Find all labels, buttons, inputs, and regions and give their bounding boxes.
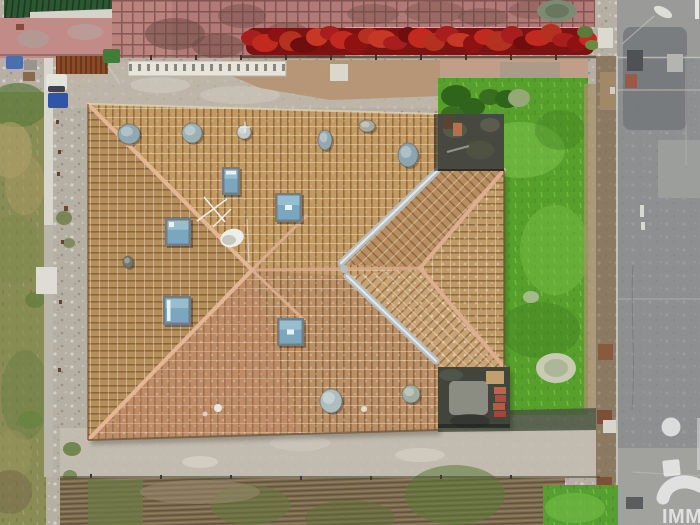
red-brick bbox=[493, 403, 505, 410]
red-brick bbox=[494, 411, 506, 417]
roof-vent-part bbox=[361, 122, 370, 128]
grey-crate bbox=[24, 60, 37, 70]
grass-tuft bbox=[25, 292, 45, 308]
main-ridge bbox=[252, 268, 420, 270]
fence-post bbox=[370, 476, 372, 480]
house bbox=[88, 104, 513, 445]
vent-cap bbox=[361, 406, 367, 412]
fence-post bbox=[150, 55, 152, 60]
dry-grass-patch bbox=[5, 155, 45, 215]
blue-tarp bbox=[6, 56, 23, 69]
white-post bbox=[598, 28, 613, 48]
fence-post bbox=[61, 240, 64, 244]
moss-stain bbox=[405, 1, 465, 23]
watermark-text: IMM bbox=[662, 506, 700, 525]
fence-post bbox=[330, 55, 332, 60]
white-sign bbox=[330, 64, 348, 81]
gravel-mottle bbox=[395, 448, 445, 462]
fence-post bbox=[440, 475, 442, 479]
red-brick bbox=[494, 387, 506, 394]
skylight-part bbox=[278, 196, 300, 206]
terrace-stain bbox=[17, 30, 49, 48]
white-shed-roof bbox=[36, 267, 57, 294]
moss-stain bbox=[458, 8, 508, 26]
wood-plank-stack bbox=[486, 371, 504, 384]
annex-shadow-strip bbox=[434, 114, 438, 171]
van-windshield bbox=[48, 86, 65, 92]
fence-post bbox=[59, 300, 62, 304]
shrub bbox=[63, 442, 81, 456]
fence-post bbox=[300, 476, 302, 480]
hedge-green-tuft bbox=[585, 40, 599, 50]
vent-cap bbox=[214, 404, 222, 412]
skylight bbox=[222, 167, 242, 197]
valley-junction bbox=[340, 265, 348, 273]
brown-wall-block bbox=[598, 344, 613, 360]
concrete-patch bbox=[449, 381, 488, 415]
skylight bbox=[163, 296, 193, 327]
balustrade-balusters bbox=[128, 61, 286, 76]
aerial-photo: IMM bbox=[0, 0, 700, 525]
annex-edge bbox=[438, 424, 510, 428]
white-tick bbox=[610, 87, 615, 94]
fence-post bbox=[240, 55, 242, 60]
moss-stain bbox=[192, 34, 244, 58]
scrub-patch bbox=[88, 480, 143, 525]
grass-dark-patch bbox=[500, 302, 580, 358]
fence-post bbox=[465, 55, 467, 60]
red-marker bbox=[625, 74, 637, 88]
dry-streak bbox=[140, 480, 260, 504]
wall-lower bbox=[44, 225, 53, 477]
moss-stain bbox=[347, 4, 399, 24]
fence-post bbox=[90, 474, 92, 478]
roof-vent-part bbox=[121, 127, 133, 137]
shrub bbox=[56, 211, 72, 225]
grass-light-patch bbox=[520, 205, 590, 295]
fence-post bbox=[555, 55, 557, 60]
white-edge-line bbox=[695, 0, 699, 19]
skylight-part bbox=[226, 171, 236, 175]
terrace-detail bbox=[16, 24, 24, 30]
fence-post bbox=[58, 368, 61, 372]
scene-svg: IMM bbox=[0, 0, 700, 525]
moss-stain bbox=[218, 4, 266, 28]
watermark-logo-square bbox=[662, 459, 681, 477]
skylight-part bbox=[169, 222, 174, 227]
roof-vent-part bbox=[323, 392, 335, 404]
vent-cap bbox=[203, 412, 208, 417]
moss-patch bbox=[466, 141, 494, 159]
fence-post bbox=[230, 475, 232, 479]
fence-post bbox=[195, 55, 197, 60]
manhole-cover bbox=[627, 50, 643, 71]
roof-vent-part bbox=[185, 126, 196, 136]
skylight bbox=[277, 318, 306, 348]
fence-post bbox=[160, 475, 162, 479]
dark-planter bbox=[444, 117, 453, 129]
fence-post bbox=[420, 55, 422, 60]
roof-vent-part bbox=[401, 146, 412, 158]
gravel-mottle bbox=[182, 456, 218, 468]
red-brick bbox=[495, 395, 506, 402]
red-hedge bbox=[241, 24, 599, 55]
shrub bbox=[63, 238, 75, 248]
fence-post bbox=[375, 55, 377, 60]
grass-light-patch bbox=[545, 493, 605, 523]
roof-vent-part bbox=[124, 258, 130, 264]
road bbox=[596, 0, 700, 525]
fence-post bbox=[57, 172, 60, 176]
dry-edge-strip bbox=[584, 84, 597, 412]
pale-shrub bbox=[508, 89, 530, 107]
weed-tuft bbox=[523, 291, 539, 303]
fence-post bbox=[58, 150, 61, 154]
terrace-stain bbox=[67, 24, 103, 40]
roof-stain bbox=[480, 118, 500, 132]
bush-core bbox=[545, 4, 569, 18]
scrub-patch bbox=[405, 465, 505, 525]
green-wheelie-bin bbox=[103, 49, 120, 63]
wall-texture bbox=[596, 56, 616, 525]
fence-post bbox=[510, 55, 512, 60]
blue-wheelie-bin bbox=[48, 93, 68, 108]
gravel-mottle bbox=[130, 77, 190, 93]
fence-post bbox=[64, 206, 68, 211]
skylight-part bbox=[280, 321, 302, 330]
brown-crate bbox=[23, 72, 35, 81]
fence-post bbox=[285, 55, 287, 60]
terracotta-pot bbox=[453, 123, 462, 136]
white-post bbox=[603, 420, 616, 433]
hedge-green-tuft bbox=[577, 26, 593, 38]
dish-shadow bbox=[222, 235, 236, 245]
utility-cover bbox=[667, 54, 683, 72]
white-dash bbox=[641, 222, 645, 230]
fence-post bbox=[56, 120, 59, 124]
weed-ball-core bbox=[544, 359, 568, 377]
skylight bbox=[165, 218, 193, 248]
rusty-gate-corrugation bbox=[56, 56, 108, 74]
roof-vent-part bbox=[320, 133, 328, 143]
skylight bbox=[275, 193, 304, 224]
moss-patch bbox=[439, 369, 463, 381]
grass-dark-patch bbox=[535, 110, 585, 150]
skylight-part bbox=[167, 300, 171, 321]
asphalt-patch-light bbox=[658, 140, 700, 198]
fence-post bbox=[510, 475, 512, 479]
white-dash bbox=[640, 205, 644, 217]
watermark-logo-dot bbox=[662, 418, 681, 437]
grass-tuft bbox=[18, 411, 42, 429]
skylight-part bbox=[287, 330, 294, 335]
roof-vent-part bbox=[404, 387, 414, 396]
skylight-part bbox=[285, 205, 292, 210]
manhole-cover bbox=[626, 497, 643, 509]
